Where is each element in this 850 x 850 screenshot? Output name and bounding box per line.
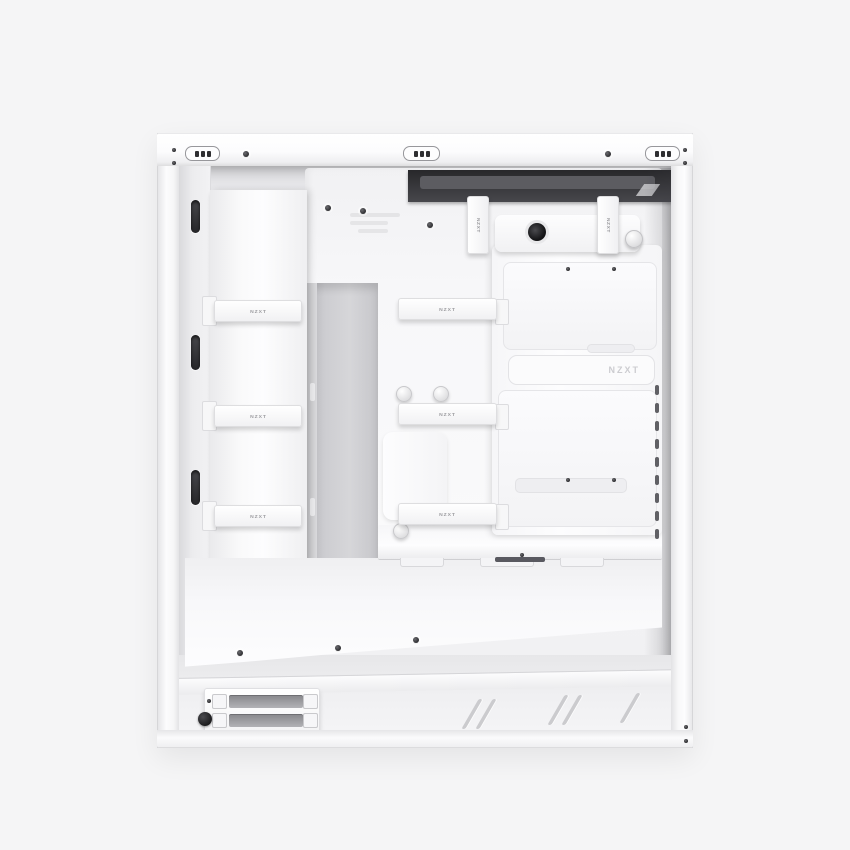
rivet-icon — [172, 148, 176, 152]
bracket-slot-icon — [229, 714, 303, 727]
embossed-bar: NZXT — [508, 355, 655, 385]
top-vent-icon — [185, 146, 220, 161]
ledge-tab — [560, 558, 604, 567]
embossed-brand-label: NZXT — [609, 365, 641, 375]
strap-anchor — [495, 504, 509, 530]
radiator-bracket — [420, 176, 655, 189]
etched-marking — [350, 213, 400, 217]
bracket-knob — [198, 712, 212, 726]
panel-recess-upper — [503, 262, 657, 350]
bracket-clip — [212, 713, 227, 728]
case-interior: NZXT NZXT NZXT NZXT NZXT NZXT — [178, 165, 672, 731]
pc-case: NZXT NZXT NZXT NZXT NZXT NZXT — [157, 133, 693, 748]
frame-right — [671, 133, 693, 748]
bracket-clip — [303, 713, 318, 728]
rail-slot-icon — [310, 383, 315, 401]
screw-icon — [566, 478, 570, 482]
strap-brand-label: NZXT — [439, 306, 456, 312]
cable-strap: NZXT — [214, 505, 302, 527]
drive-bracket — [204, 688, 320, 731]
floor-vent-icon — [619, 693, 640, 723]
rivet-icon — [683, 148, 687, 152]
cable-slot-icon — [191, 335, 200, 370]
ledge-gap — [495, 557, 545, 562]
cable-strap: NZXT — [398, 298, 497, 320]
screw-icon — [612, 267, 616, 271]
screw-icon — [325, 205, 331, 211]
strap-anchor — [495, 299, 509, 325]
screw-icon — [612, 478, 616, 482]
cable-peg — [396, 386, 412, 402]
strap-brand-label: NZXT — [250, 413, 267, 419]
panel-slot-icon — [587, 344, 635, 353]
cpu-cutout-panel: NZXT — [492, 245, 662, 535]
etched-marking — [358, 229, 388, 233]
frame-left — [157, 133, 179, 748]
thumbscrew — [625, 230, 643, 248]
strap-brand-label: NZXT — [439, 411, 456, 417]
strap-brand-label: NZXT — [475, 218, 480, 233]
panel-recess-lower — [498, 390, 657, 527]
strap-brand-label: NZXT — [605, 218, 610, 233]
screw-icon — [360, 208, 366, 214]
frame-bottom — [157, 730, 693, 748]
cable-strap-vertical: NZXT — [467, 196, 489, 254]
rivet-icon — [684, 739, 688, 743]
screw-icon — [413, 637, 419, 643]
panel-slot-icon — [515, 478, 627, 493]
bracket-clip — [303, 694, 318, 709]
screw-icon — [207, 699, 211, 703]
cable-grommet-icon — [528, 223, 546, 241]
screw-icon — [605, 151, 611, 157]
cable-peg — [433, 386, 449, 402]
screw-icon — [520, 553, 524, 557]
cable-strap-vertical: NZXT — [597, 196, 619, 254]
rivet-icon — [684, 725, 688, 729]
screw-icon — [243, 151, 249, 157]
strap-anchor — [495, 404, 509, 430]
cable-strap: NZXT — [398, 503, 497, 525]
top-radiator-band — [408, 170, 672, 202]
rear-vent-column — [655, 385, 667, 551]
screw-icon — [335, 645, 341, 651]
ledge-tab — [400, 558, 444, 567]
cable-strap: NZXT — [214, 300, 302, 322]
rivet-icon — [172, 161, 176, 165]
cable-slot-icon — [191, 470, 200, 505]
bracket-slot-icon — [229, 695, 303, 708]
etched-marking — [350, 221, 388, 225]
cable-slot-icon — [191, 200, 200, 233]
screw-icon — [427, 222, 433, 228]
channel-rail — [307, 283, 317, 562]
strap-brand-label: NZXT — [250, 513, 267, 519]
strap-brand-label: NZXT — [439, 511, 456, 517]
rivet-icon — [683, 161, 687, 165]
cable-strap: NZXT — [214, 405, 302, 427]
cable-peg — [393, 523, 409, 539]
screw-icon — [566, 267, 570, 271]
bracket-clip — [212, 694, 227, 709]
top-vent-icon — [403, 146, 440, 161]
screw-icon — [237, 650, 243, 656]
psu-shroud — [185, 558, 662, 670]
cable-strap: NZXT — [398, 403, 497, 425]
rail-slot-icon — [310, 498, 315, 516]
strap-brand-label: NZXT — [250, 308, 267, 314]
cable-channel — [307, 283, 378, 562]
top-vent-icon — [645, 146, 680, 161]
